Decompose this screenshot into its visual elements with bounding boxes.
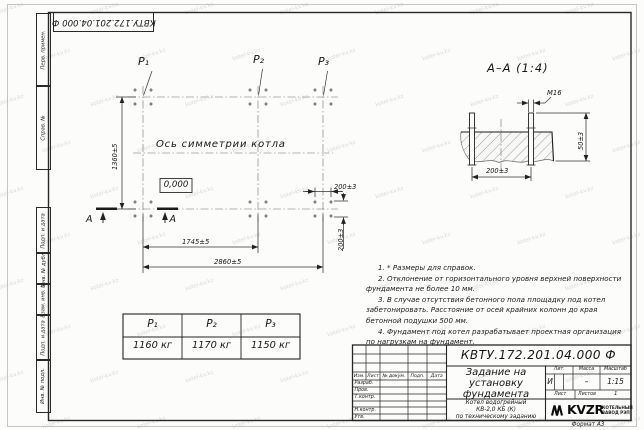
margin-label: Взам. инв. №: [40, 282, 46, 317]
dim-protrusion-50: 50±3: [577, 132, 585, 150]
margin-box-podp-data-1: Подп. и дата: [36, 207, 51, 254]
dim-bolt-spacing-x: 200±3: [334, 183, 356, 191]
doc-number-rotated-box: КВТУ.172.201.04.000 Ф: [53, 12, 154, 32]
sig-row-razrab: Разраб.: [355, 381, 374, 386]
dim-1360: 1360±5: [111, 143, 119, 170]
sig-row-prov: Пров.: [355, 388, 369, 393]
margin-box-sprav-no: Справ. №: [36, 85, 51, 170]
mass-header: Масса: [573, 367, 600, 372]
product-line2: КВ-2,0 КБ (К): [447, 407, 546, 413]
sig-header-izm: Изм.: [353, 374, 367, 379]
margin-label: Справ. №: [40, 115, 46, 140]
kvzr-logo-icon: [550, 403, 565, 418]
loads-table-value-p3: 1150 кг: [241, 340, 300, 351]
sig-row-tkontr: Т.контр.: [355, 395, 376, 400]
lit-value: И: [546, 377, 555, 386]
dim-bolt-spacing-y: 200±3: [337, 229, 345, 251]
margin-box-podp-data-2: Подп. и дата: [36, 314, 51, 361]
sig-header-docnum: № докум.: [380, 374, 408, 379]
margin-box-inv-dubl: Инв. № дубл.: [36, 252, 51, 285]
loads-table-header-p1: P₁: [123, 318, 182, 330]
plan-point-label-p3: P₃: [318, 55, 329, 68]
plan-point-label-p1: P₁: [138, 55, 149, 68]
doc-number-rotated: КВТУ.172.201.04.000 Ф: [52, 17, 156, 27]
dim-section-bolt-spacing: 200±3: [486, 167, 508, 175]
margin-box-inv-podl: Инв. № подл.: [36, 359, 51, 413]
drawing-sheet: kotel-kv.kzkotel-kv.kzkotel-kv.kzkotel-k…: [0, 0, 644, 430]
margin-box-vzam-inv: Взам. инв. №: [36, 283, 51, 316]
loads-table-value-p2: 1170 кг: [182, 340, 241, 351]
margin-label: Подп. и дата: [40, 213, 46, 248]
sig-row-nkontr: Н.контр.: [355, 408, 376, 413]
sheets-value: 1: [614, 391, 618, 397]
plan-dimensions: [116, 97, 348, 273]
company-caption-line2: ЗАВОД РЭП: [602, 410, 630, 415]
loads-table-header-p2: P₂: [182, 318, 241, 330]
margin-label: Инв. № подл.: [40, 368, 46, 404]
sig-row-utv: Утв.: [355, 415, 365, 420]
scale-header: Масштаб: [600, 367, 631, 372]
sig-header-podp: Подп.: [408, 374, 427, 379]
title-block-title-line2: установку: [447, 378, 546, 389]
section-letter-left: А: [86, 214, 93, 225]
scale-value: 1:15: [600, 377, 631, 386]
notes-block: 1. * Размеры для справок. 2. Отклонение …: [366, 263, 630, 348]
margin-box-perv-primen: Перв. примен.: [36, 13, 51, 88]
product-line1: Котел водогрейный: [447, 400, 546, 406]
title-block-title-line1: Задание на: [447, 367, 546, 378]
loads-table-value-p1: 1160 кг: [123, 340, 182, 351]
dim-2860: 2860±5: [214, 258, 241, 266]
plan-axis-lines: [128, 86, 338, 222]
plan-view-linework: [96, 69, 348, 273]
note-1: 1. * Размеры для справок.: [366, 263, 630, 274]
note-3: 3. В случае отсутствия бетонного пола пл…: [366, 295, 630, 327]
plan-point-leaders: [144, 69, 328, 96]
plan-point-label-p2: P₂: [253, 53, 264, 66]
margin-label: Подп. и дата: [40, 320, 46, 355]
note-2: 2. Отклонение от горизонтального уровня …: [366, 274, 630, 295]
sheet-label: Лист: [546, 392, 576, 397]
symmetry-axis-label: Ось симметрии котла: [156, 139, 286, 150]
section-title: А–А (1:4): [487, 61, 549, 75]
mass-value: –: [573, 377, 600, 386]
note-4: 4. Фундамент под котел разрабатывает про…: [366, 327, 630, 348]
sig-header-list: Лист: [366, 374, 380, 379]
sig-header-data: Дата: [427, 374, 447, 379]
company-logo-text: KVZR: [567, 402, 604, 417]
loads-table-header-p3: P₃: [241, 318, 300, 330]
title-block-title-line3: фундамента: [447, 389, 546, 400]
plan-section-cut-marks: [96, 209, 178, 223]
sheets-label: Листов: [578, 392, 596, 397]
product-line3: по техническому заданию: [447, 414, 546, 420]
title-block-doc-number: КВТУ.172.201.04.000 Ф: [447, 348, 631, 362]
thread-label-m16: М16: [547, 89, 562, 97]
margin-label: Перв. примен.: [40, 30, 46, 69]
dim-1745: 1745±5: [182, 238, 209, 246]
format-note: Формат А3: [558, 422, 618, 428]
margin-label: Инв. № дубл.: [40, 251, 46, 287]
level-mark: 0,000: [160, 180, 192, 190]
section-letter-right: А: [170, 214, 177, 225]
section-view-linework: [461, 97, 590, 181]
lit-header: Лит.: [546, 367, 574, 372]
